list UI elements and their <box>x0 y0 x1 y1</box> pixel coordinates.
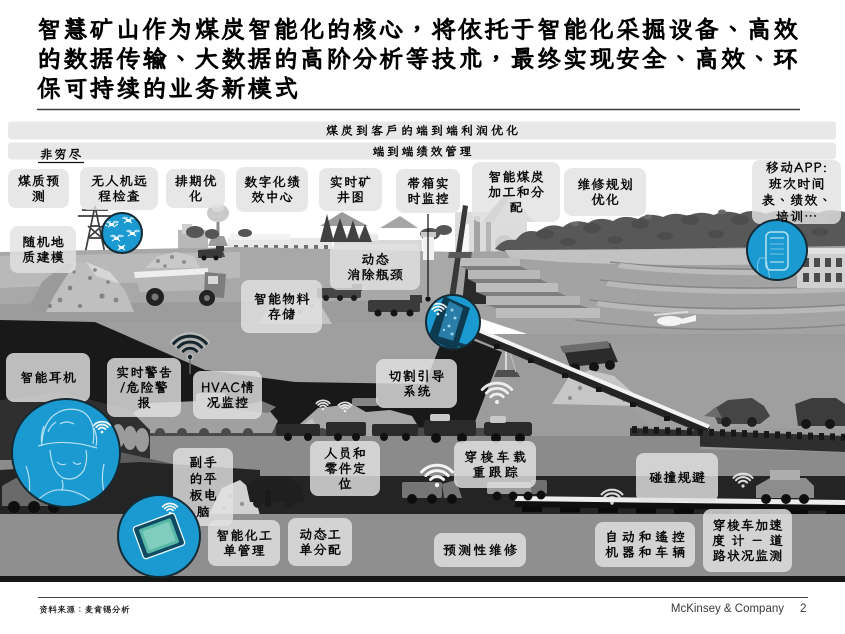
svg-text:McKinsey & Company: McKinsey & Company <box>671 603 784 615</box>
svg-text:2: 2 <box>800 603 806 615</box>
